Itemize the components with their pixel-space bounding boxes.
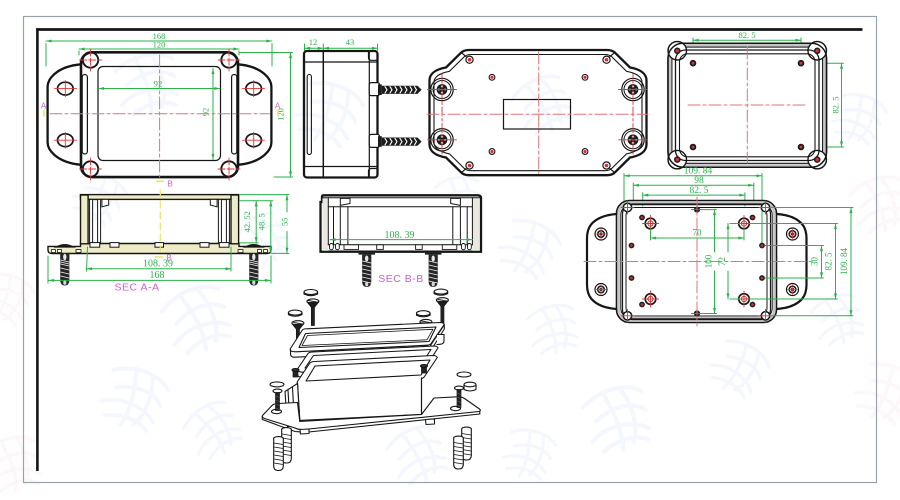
- svg-text:168: 168: [150, 270, 165, 281]
- svg-text:55: 55: [280, 218, 290, 227]
- svg-text:70: 70: [693, 228, 703, 238]
- svg-text:109. 84: 109. 84: [684, 166, 713, 176]
- svg-text:48. 5: 48. 5: [257, 213, 267, 230]
- svg-text:72: 72: [717, 257, 727, 266]
- svg-text:92: 92: [201, 108, 211, 117]
- svg-text:42. 52: 42. 52: [242, 211, 252, 232]
- svg-text:12: 12: [309, 37, 318, 47]
- svg-text:82. 5: 82. 5: [739, 30, 756, 40]
- svg-text:A: A: [275, 102, 281, 111]
- svg-text:82. 5: 82. 5: [831, 97, 841, 114]
- svg-text:30: 30: [810, 257, 820, 267]
- svg-text:82. 5: 82. 5: [690, 186, 709, 196]
- svg-text:108. 39: 108. 39: [385, 230, 415, 241]
- svg-text:120: 120: [153, 40, 166, 50]
- svg-text:98: 98: [694, 176, 704, 186]
- svg-text:SEC B-B: SEC B-B: [378, 273, 424, 285]
- svg-text:108. 39: 108. 39: [143, 258, 173, 269]
- svg-text:43: 43: [346, 37, 355, 47]
- svg-text:SEC A-A: SEC A-A: [115, 282, 160, 294]
- svg-text:92: 92: [154, 79, 163, 89]
- svg-text:B: B: [167, 180, 172, 189]
- svg-text:A: A: [41, 102, 47, 111]
- svg-text:82. 5: 82. 5: [824, 252, 834, 271]
- svg-text:109. 84: 109. 84: [839, 248, 849, 276]
- svg-text:100: 100: [704, 254, 714, 268]
